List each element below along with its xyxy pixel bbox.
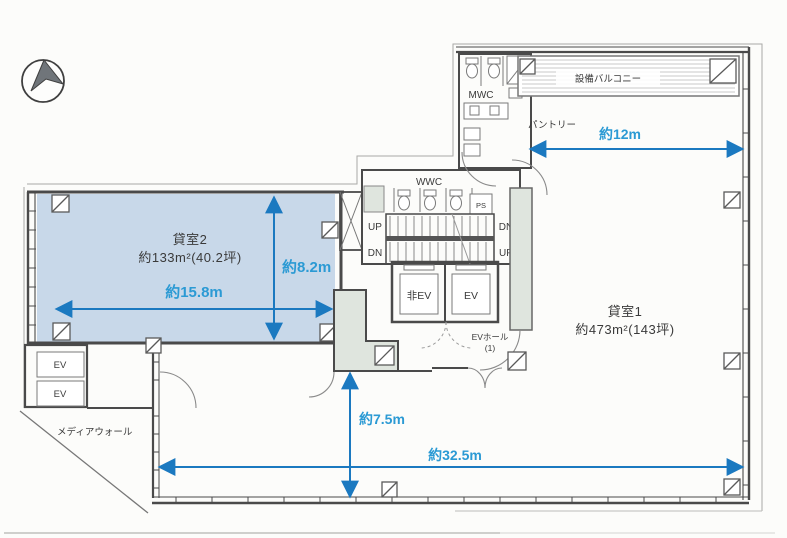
stairs-dn-left-label: DN: [368, 248, 382, 259]
balcony-label: 設備バルコニー: [575, 73, 641, 85]
floor-plan-page: 貸室2 約133m²(40.2坪) 約15.8m 約8.2m EV EV メディ…: [0, 0, 787, 538]
room2-name: 貸室2: [173, 232, 208, 247]
room2-area: 約133m²(40.2坪): [138, 250, 241, 265]
pantry-label: パントリー: [528, 120, 576, 131]
core: WWC PS UP DN DN UP 非EV EV: [309, 54, 547, 397]
west-ev2-label: EV: [54, 389, 67, 400]
mwc-label: MWC: [469, 90, 494, 101]
room1-name: 貸室1: [608, 304, 643, 319]
emergency-elevator-label: 非EV: [407, 290, 432, 302]
south-depth-dimension: 約7.5m: [359, 411, 405, 427]
elevator-label: EV: [464, 290, 478, 302]
west-wing: EV EV メディアウォール: [20, 338, 196, 513]
top-dimension: 約12m: [599, 126, 641, 142]
ev-hall-label: EVホール: [472, 332, 509, 342]
toilet-fixtures: [398, 190, 462, 210]
north-arrow-icon: [22, 60, 64, 102]
room1-area: 約473m²(143坪): [575, 322, 674, 337]
floor-plan-drawing: 貸室2 約133m²(40.2坪) 約15.8m 約8.2m EV EV メディ…: [0, 0, 787, 538]
room2: 貸室2 約133m²(40.2坪) 約15.8m 約8.2m: [27, 192, 344, 344]
stairs-up-left-label: UP: [368, 222, 382, 233]
media-wall-label: メディアウォール: [57, 426, 133, 438]
equipment-balcony: 設備バルコニー: [518, 56, 739, 96]
wwc-label: WWC: [416, 177, 442, 188]
ps-label: PS: [476, 201, 486, 210]
room2-width-dimension: 約15.8m: [165, 283, 223, 301]
scan-artifacts: [4, 511, 775, 533]
room2-depth-dimension: 約8.2m: [282, 258, 331, 276]
west-ev1-label: EV: [54, 360, 67, 371]
ev-hall-number: (1): [485, 343, 496, 353]
south-width-dimension: 約32.5m: [428, 447, 482, 463]
